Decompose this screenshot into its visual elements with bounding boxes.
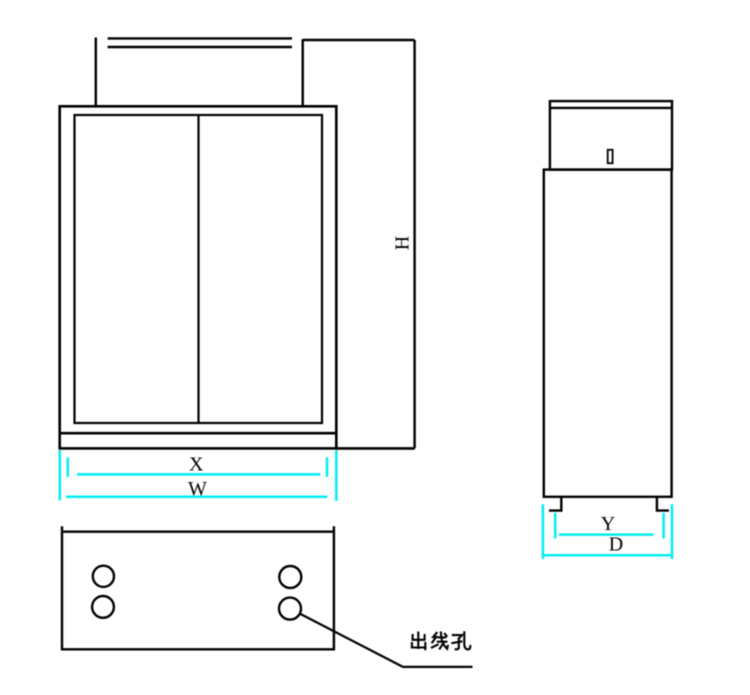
svg-text:X: X xyxy=(189,454,204,476)
svg-text:D: D xyxy=(609,534,623,556)
svg-text:Y: Y xyxy=(601,513,615,535)
svg-text:H: H xyxy=(392,236,414,250)
svg-text:W: W xyxy=(188,478,207,500)
